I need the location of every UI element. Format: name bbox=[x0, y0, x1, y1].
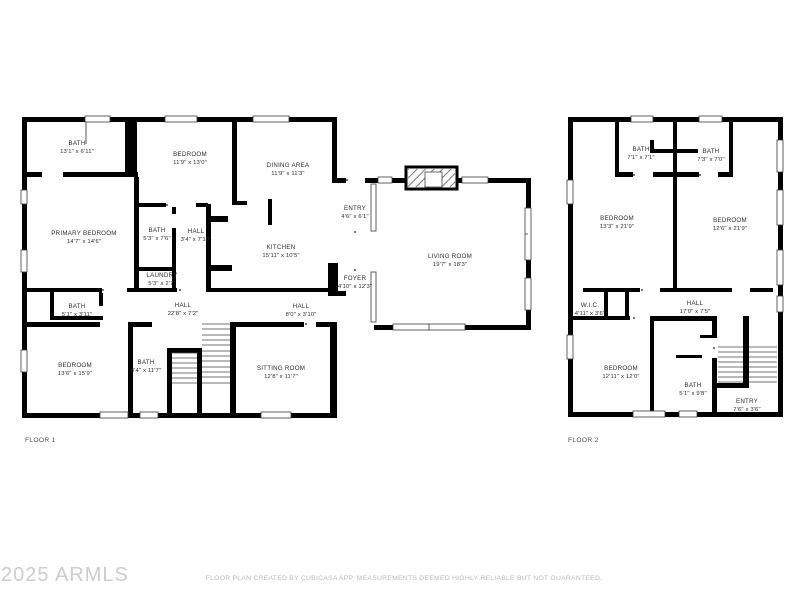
room-dims: 11'9" x 11'3" bbox=[271, 171, 304, 177]
room-dims: 4'10" x 12'3" bbox=[338, 284, 372, 290]
room-name: W.I.C. bbox=[581, 302, 599, 309]
room-name: BATH bbox=[684, 382, 701, 389]
floor2-door-hinge-dots bbox=[633, 174, 732, 349]
room-dims: 5'1" x 3'11" bbox=[62, 312, 92, 318]
room-dims: 7'6" x 3'6" bbox=[733, 407, 760, 413]
room-dims: 13'3" x 21'9" bbox=[600, 224, 634, 230]
room-name: HALL bbox=[293, 303, 310, 310]
room-name: BEDROOM bbox=[713, 217, 747, 224]
room-dims: 7'1" x 7'1" bbox=[627, 155, 654, 161]
room-dims: 5'3" x 7'6" bbox=[143, 236, 170, 242]
room-name: BEDROOM bbox=[604, 365, 638, 372]
room-dims: 14'7" x 14'6" bbox=[67, 239, 101, 245]
room-name: BEDROOM bbox=[173, 151, 207, 158]
room-name: HALL bbox=[687, 300, 704, 307]
floor2-room-labels: BATH 7'1" x 7'1" BATH 7'3" x 7'0" BEDROO… bbox=[575, 146, 761, 413]
room-dims: 15'11" x 10'5" bbox=[262, 253, 299, 259]
floor1-caption: FLOOR 1 bbox=[25, 437, 56, 444]
room-name: KITCHEN bbox=[267, 244, 296, 251]
armls-watermark: 2025 ARMLS bbox=[1, 564, 129, 586]
room-name: ENTRY bbox=[344, 205, 366, 212]
room-dims: 12'8" x 11'7" bbox=[264, 374, 298, 380]
room-name: HALL bbox=[188, 228, 205, 235]
room-name: BEDROOM bbox=[600, 215, 634, 222]
room-name: HALL bbox=[175, 302, 192, 309]
room-name: LIVING ROOM bbox=[428, 253, 472, 260]
room-name: LAUNDRY bbox=[146, 272, 177, 279]
room-dims: 7'3" x 7'0" bbox=[697, 157, 724, 163]
room-dims: 19'7" x 18'3" bbox=[433, 262, 467, 268]
room-name: BATH bbox=[702, 148, 719, 155]
floor2-caption: FLOOR 2 bbox=[568, 437, 599, 444]
room-dims: 12'6" x 21'9" bbox=[713, 226, 747, 232]
fireplace-icon bbox=[406, 167, 457, 189]
room-name: SITTING ROOM bbox=[257, 365, 305, 372]
floor-plan-canvas: BATH 13'1" x 6'11" BEDROOM 11'9" x 13'0"… bbox=[0, 0, 800, 600]
room-name: ENTRY bbox=[736, 398, 758, 405]
disclaimer-text: FLOOR PLAN CREATED BY CUBICASA APP. MEAS… bbox=[206, 575, 603, 582]
room-name: BATH bbox=[632, 146, 649, 153]
room-dims: 8'4" x 11'7" bbox=[131, 368, 161, 374]
room-dims: 4'6" x 6'1" bbox=[341, 214, 368, 220]
room-dims: 11'9" x 13'0" bbox=[173, 160, 207, 166]
room-dims: 5'3" x 2'7" bbox=[148, 281, 175, 287]
room-dims: 12'11" x 12'0" bbox=[602, 374, 639, 380]
room-dims: 22'8" x 7'2" bbox=[168, 311, 199, 317]
room-name: DINING AREA bbox=[267, 162, 310, 169]
room-name: BATH bbox=[68, 140, 85, 147]
room-dims: 4'11" x 3'6" bbox=[575, 311, 605, 317]
room-name: FOYER bbox=[344, 275, 367, 282]
room-name: BEDROOM bbox=[58, 362, 92, 369]
room-dims: 13'6" x 15'9" bbox=[58, 371, 92, 377]
room-dims: 13'1" x 6'11" bbox=[60, 149, 94, 155]
room-dims: 8'0" x 3'10" bbox=[286, 312, 317, 318]
floor-plan-svg: BATH 13'1" x 6'11" BEDROOM 11'9" x 13'0"… bbox=[0, 0, 800, 600]
room-name: BATH bbox=[137, 359, 154, 366]
room-name: BATH bbox=[68, 303, 85, 310]
room-name: BATH bbox=[148, 227, 165, 234]
room-dims: 3'4" x 7'10" bbox=[181, 237, 212, 243]
room-name: PRIMARY BEDROOM bbox=[51, 230, 116, 237]
room-dims: 17'0" x 7'5" bbox=[680, 309, 711, 315]
room-dims: 5'1" x 9'8" bbox=[679, 391, 706, 397]
